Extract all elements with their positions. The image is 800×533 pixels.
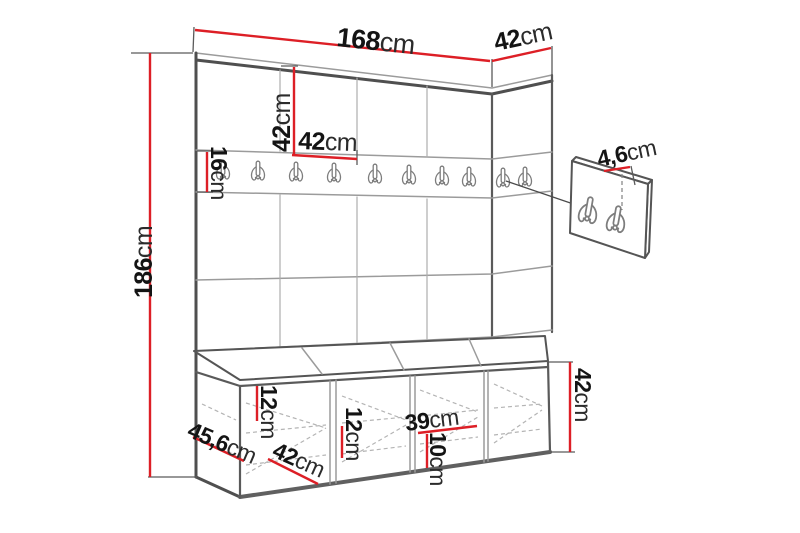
dim-rail-height-label: 16cm — [206, 146, 232, 200]
top-slab-top-edge — [196, 53, 552, 88]
dimension-labels: 168cm 42cm 186cm 42cm 42cm 16cm 4,6cm 12… — [130, 17, 658, 486]
coat-hook — [369, 164, 382, 183]
panel-row-seam — [196, 266, 552, 280]
dim-total-width-label: 168cm — [335, 22, 416, 60]
dim-panel-width-label: 42cm — [298, 127, 358, 157]
wall-unit — [196, 53, 552, 477]
coat-hook — [252, 161, 265, 180]
dim-panel-height-label: 42cm — [268, 93, 296, 152]
top-slab-bottom-edge — [196, 60, 552, 94]
bench-cushion-top — [194, 336, 548, 380]
dimension-diagram: 168cm 42cm 186cm 42cm 42cm 16cm 4,6cm 12… — [0, 0, 800, 533]
hidden-shelf-line — [494, 404, 542, 408]
coat-hook — [463, 167, 476, 186]
storage-bench — [194, 336, 550, 497]
dim-bench-top-height-label: 12cm — [256, 385, 282, 439]
dim-panel-thickness-label: 4,6cm — [595, 134, 659, 172]
coat-hook — [519, 167, 532, 186]
hook-rail — [217, 160, 532, 187]
coat-hook — [290, 162, 303, 181]
hidden-shelf-line — [494, 429, 542, 435]
hook-panel-detail — [506, 157, 652, 258]
coat-hook — [328, 163, 341, 182]
dim-bench-shelf-height-label: 12cm — [341, 407, 367, 461]
bench-left-bottom-edge — [196, 477, 240, 497]
rail-bottom-seam — [196, 191, 552, 198]
coat-hook — [497, 168, 510, 187]
dim-top-depth-label: 42cm — [491, 17, 554, 57]
dim-total-height-label: 186cm — [130, 226, 158, 298]
bench-divider — [484, 371, 488, 462]
dimension-lines — [131, 27, 635, 484]
dim-bench-height-label: 42cm — [570, 368, 596, 422]
bench-divider — [330, 380, 336, 484]
coat-hook — [436, 166, 449, 185]
hidden-shelf-line — [494, 410, 542, 443]
extension-tick — [193, 27, 194, 52]
bench-right-edge — [548, 362, 550, 452]
coat-hook — [403, 165, 416, 184]
rail-top-seam — [196, 150, 552, 159]
hidden-shelf-line — [494, 384, 542, 406]
dim-compartment-height-label: 10cm — [425, 432, 451, 486]
hidden-shelf-line — [202, 404, 236, 420]
